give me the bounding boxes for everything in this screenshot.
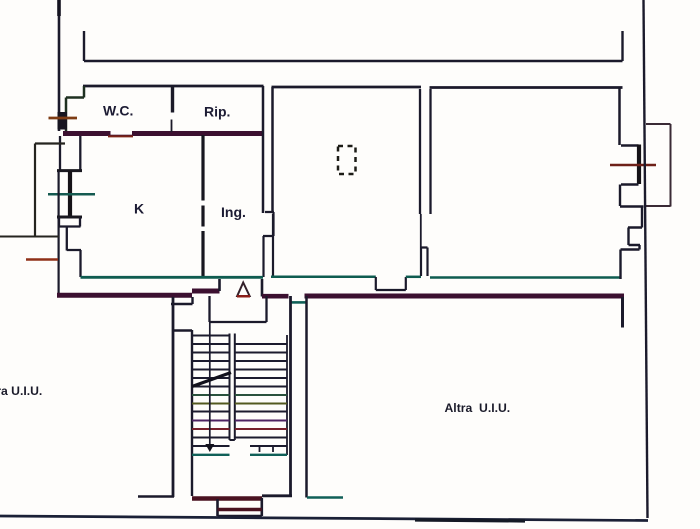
svg-text:Altra U.I.U.: Altra U.I.U. [0,384,42,398]
svg-text:Altra U.I.U.: Altra U.I.U. [445,401,511,415]
svg-text:K: K [134,201,144,217]
svg-text:Ing.: Ing. [221,204,246,220]
svg-text:W.C.: W.C. [103,103,133,119]
svg-text:Rip.: Rip. [204,104,230,120]
